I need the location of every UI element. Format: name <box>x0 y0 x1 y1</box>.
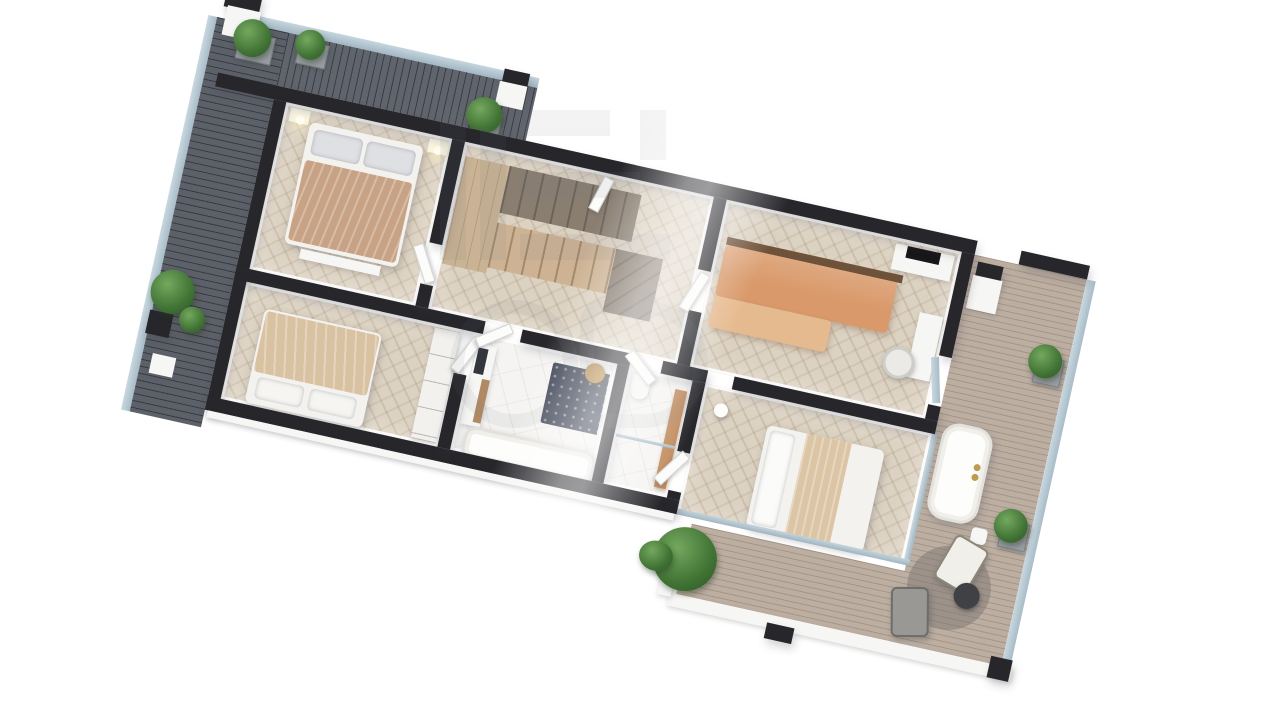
floor-plan-scene <box>0 0 1280 720</box>
glass-door-terrace <box>931 357 940 403</box>
rotated-plan <box>97 40 1196 720</box>
terrace-corner-post <box>986 656 1012 682</box>
lounge-chair-gray <box>891 587 929 637</box>
